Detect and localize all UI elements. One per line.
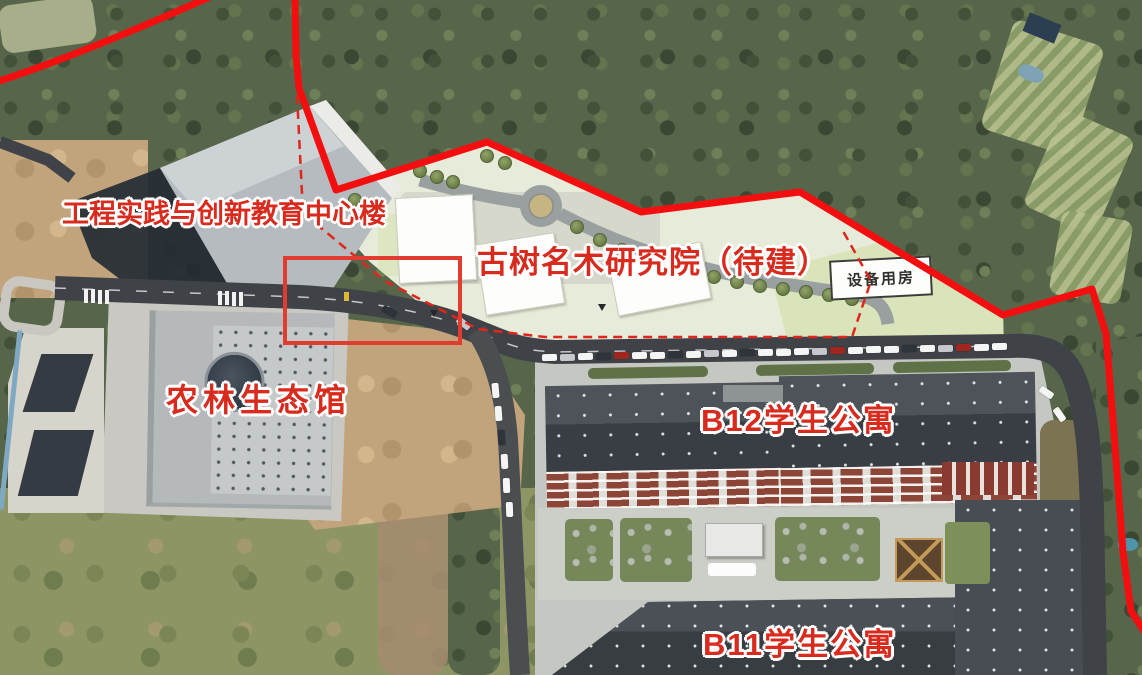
parked-car xyxy=(812,348,827,355)
plan-tree xyxy=(799,285,813,299)
parked-car xyxy=(491,383,499,399)
parked-car xyxy=(596,353,611,360)
parked-car xyxy=(740,349,755,356)
parked-car xyxy=(668,351,683,358)
plan-tree xyxy=(753,279,767,293)
parked-car xyxy=(938,345,953,352)
parked-car xyxy=(686,351,701,358)
parked-car xyxy=(578,353,593,360)
plan-tree xyxy=(446,175,460,189)
parked-car xyxy=(902,345,917,352)
parked-car xyxy=(650,352,665,359)
parked-car xyxy=(704,350,719,357)
plan-tree xyxy=(498,156,512,170)
parked-car xyxy=(956,344,971,351)
parked-car xyxy=(848,347,863,354)
road-network xyxy=(0,0,1142,675)
parked-car xyxy=(497,430,505,445)
parked-car xyxy=(632,352,647,359)
parked-car xyxy=(506,502,514,517)
roundabout-tree-island xyxy=(529,194,553,218)
parked-car xyxy=(758,349,773,356)
parked-car xyxy=(920,345,935,352)
aerial-map-canvas: 设备用房 工程实践与创新教育中心楼古树名木研究院（待建）农林生态馆B12学生公寓… xyxy=(0,0,1142,675)
parked-car xyxy=(884,346,899,353)
parked-car xyxy=(830,347,845,354)
equipment-room-text: 设备用房 xyxy=(846,266,915,291)
plan-tree xyxy=(413,164,427,178)
plan-tree xyxy=(776,282,790,296)
engineering-center-label: 工程实践与创新教育中心楼 xyxy=(62,200,386,230)
parked-car xyxy=(866,346,881,353)
b12-dorm-label: B12学生公寓 xyxy=(701,404,896,438)
plan-tree xyxy=(570,220,584,234)
parked-car xyxy=(722,350,737,357)
parked-car xyxy=(614,352,629,359)
road-northwest xyxy=(0,142,72,178)
parked-car xyxy=(992,343,1007,350)
agri-forestry-eco-hall-label: 农林生态馆 xyxy=(166,383,351,418)
parked-car xyxy=(494,406,502,421)
parked-car xyxy=(794,348,809,355)
equipment-room-box: 设备用房 xyxy=(829,255,933,300)
parked-car xyxy=(503,478,511,493)
parked-car xyxy=(560,354,575,361)
ancient-tree-institute-label: 古树名木研究院（待建） xyxy=(477,246,829,280)
hedge-strips xyxy=(588,360,1011,379)
parked-car xyxy=(542,354,557,361)
plan-tree xyxy=(430,170,444,184)
parked-car xyxy=(501,454,509,469)
b11-dorm-label: B11学生公寓 xyxy=(703,628,896,662)
highlight-rectangle xyxy=(283,256,462,345)
plan-tree xyxy=(480,149,494,163)
parked-car xyxy=(776,349,791,356)
parked-car xyxy=(974,344,989,351)
